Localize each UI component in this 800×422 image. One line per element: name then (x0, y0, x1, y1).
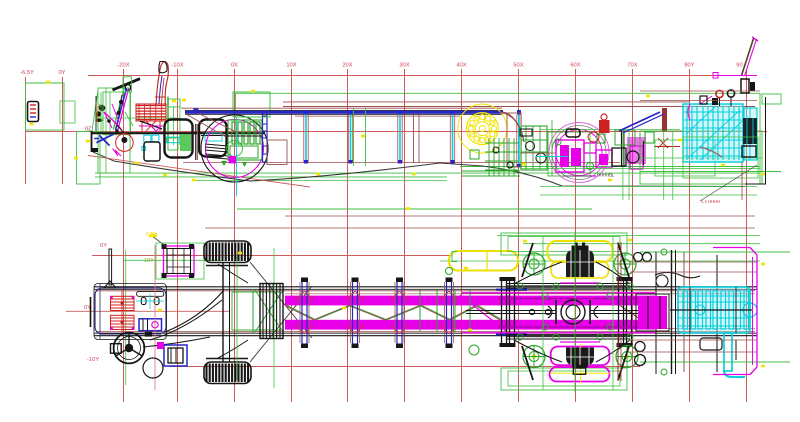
svg-text:-20X: -20X (117, 63, 129, 69)
svg-text:1-1 HHHH: 1-1 HHHH (701, 199, 720, 204)
svg-text:HHHHBL: HHHHBL (597, 173, 615, 178)
svg-text:-10Y: -10Y (87, 357, 99, 363)
svg-text:10X: 10X (286, 63, 296, 69)
svg-text:10Y: 10Y (144, 258, 154, 264)
svg-text:0Y: 0Y (58, 70, 65, 76)
svg-text:30X: 30X (399, 63, 409, 69)
svg-text:70X: 70X (627, 63, 637, 69)
svg-text:50X: 50X (513, 63, 523, 69)
svg-text:-6.5Y: -6.5Y (20, 70, 34, 76)
svg-text:0Y: 0Y (100, 243, 107, 249)
svg-text:20X: 20X (342, 63, 352, 69)
svg-text:-10X: -10X (171, 63, 183, 69)
svg-text:80Y: 80Y (684, 63, 694, 69)
svg-text:0X: 0X (231, 63, 238, 69)
svg-text:40X: 40X (456, 63, 466, 69)
svg-text:90: 90 (736, 63, 742, 69)
svg-text:60X: 60X (570, 63, 580, 69)
